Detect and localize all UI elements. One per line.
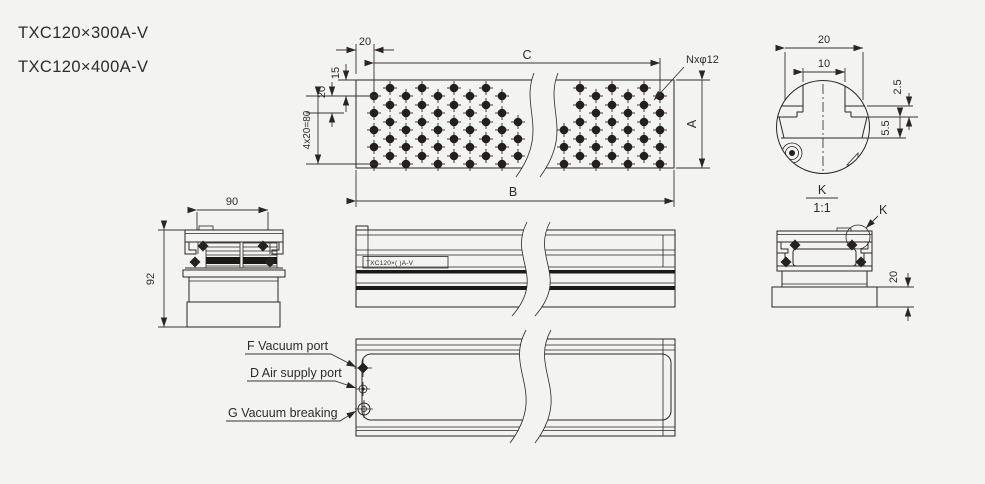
rv-hook-right (861, 242, 872, 253)
suction-hole (479, 149, 493, 163)
suction-hole (653, 140, 667, 154)
suction-hole (653, 123, 667, 137)
dk-dim25-label: 2.5 (892, 79, 904, 94)
suction-hole (431, 106, 445, 120)
suction-hole (589, 123, 603, 137)
dk-dim10-label: 10 (818, 58, 830, 70)
hole-callout-label: Nxφ12 (686, 54, 719, 66)
suction-hole (637, 115, 651, 129)
rv-mid-plate (777, 266, 872, 271)
suction-hole (653, 106, 667, 120)
suction-hole (447, 132, 461, 146)
dk-dim20-label: 20 (818, 34, 830, 46)
dim-90-label: 90 (226, 196, 238, 208)
rv-dim20-ext (877, 287, 914, 307)
suction-hole (495, 106, 509, 120)
plan-view: 20 C Nxφ12 15 20 4x20=80 A B (302, 36, 719, 207)
suction-hole (573, 149, 587, 163)
dim92-ext (158, 230, 187, 327)
suction-hole (653, 157, 667, 171)
suction-hole (479, 115, 493, 129)
suction-hole (415, 81, 429, 95)
technical-drawing-sheet: TXC120×300A-V TXC120×400A-V 20 C Nxφ12 1… (0, 0, 985, 484)
suction-hole (605, 81, 619, 95)
suction-hole (383, 81, 397, 95)
suction-hole (637, 132, 651, 146)
dim90-ext (197, 212, 268, 230)
suction-hole (479, 81, 493, 95)
dk-ledge-right (845, 106, 870, 117)
suction-hole (431, 140, 445, 154)
lv-hook-right (272, 242, 283, 254)
dk-slot-walls (803, 80, 845, 112)
suction-hole (383, 98, 397, 112)
port-d-leader (247, 381, 356, 388)
dim-c-label: C (522, 48, 531, 62)
detail-name-label: K (818, 183, 827, 197)
suction-hole (367, 123, 381, 137)
dk-ledge-left (776, 106, 803, 117)
suction-hole (511, 149, 525, 163)
detail-scale-label: 1:1 (813, 201, 830, 215)
port-d-label: D Air supply port (250, 366, 342, 380)
bv-profile-lines (356, 345, 675, 431)
suction-hole (637, 81, 651, 95)
hole-callout-leader (654, 67, 684, 100)
lv-base-lower (187, 302, 280, 327)
suction-hole (511, 132, 525, 146)
suction-hole (637, 149, 651, 163)
suction-hole (399, 157, 413, 171)
dim-a-label: A (685, 119, 699, 128)
suction-hole (557, 157, 571, 171)
rv-detail-circle (846, 225, 870, 249)
suction-hole (447, 115, 461, 129)
suction-hole (495, 123, 509, 137)
suction-hole (367, 140, 381, 154)
suction-hole (605, 98, 619, 112)
right-end-view: K 20 K 1:1 (772, 183, 914, 321)
suction-hole (621, 157, 635, 171)
suction-hole (415, 149, 429, 163)
suction-hole (431, 157, 445, 171)
suction-hole (589, 89, 603, 103)
suction-hole (511, 115, 525, 129)
fv-marking-text: TXC120×( )A-V (366, 260, 414, 267)
suction-hole-grid (367, 81, 667, 171)
suction-hole (621, 140, 635, 154)
suction-hole (495, 157, 509, 171)
suction-hole (605, 132, 619, 146)
suction-hole (383, 132, 397, 146)
suction-hole (573, 132, 587, 146)
air-supply-port-marker (356, 382, 370, 396)
suction-hole (463, 140, 477, 154)
rv-detail-leader (866, 216, 878, 228)
suction-hole (621, 89, 635, 103)
suction-hole (495, 140, 509, 154)
fv-body (356, 230, 675, 307)
fv-left-tab (356, 226, 368, 230)
suction-hole (589, 140, 603, 154)
suction-hole (557, 123, 571, 137)
suction-hole (415, 132, 429, 146)
suction-hole (605, 149, 619, 163)
suction-hole (367, 106, 381, 120)
title-block: TXC120×300A-V TXC120×400A-V (18, 24, 148, 76)
dim-top-margin-label: 15 (330, 67, 342, 79)
rv-detail-ref-label: K (879, 203, 888, 217)
port-f-label: F Vacuum port (247, 339, 329, 353)
lv-fastener-3 (190, 257, 201, 268)
suction-hole (621, 106, 635, 120)
dim-edge-offset-label: 20 (359, 36, 371, 48)
rv-base-lower (772, 287, 877, 307)
suction-hole (383, 149, 397, 163)
rv-top-plate (777, 231, 872, 242)
suction-hole (495, 89, 509, 103)
suction-hole (589, 106, 603, 120)
fv-dark-band-1 (356, 270, 675, 274)
suction-hole (463, 89, 477, 103)
suction-hole (415, 115, 429, 129)
rv-base-upper (782, 271, 867, 287)
dk-dim10-ext (803, 68, 845, 82)
lv-mid-plate (183, 270, 285, 277)
lv-bellows-left (206, 243, 240, 268)
suction-hole (589, 157, 603, 171)
suction-hole (479, 98, 493, 112)
rv-cavity (793, 249, 856, 266)
port-g-label: G Vacuum breaking (228, 406, 338, 420)
suction-hole (605, 115, 619, 129)
suction-hole (479, 132, 493, 146)
suction-hole (573, 115, 587, 129)
model-number-2: TXC120×400A-V (18, 58, 148, 76)
rv-hook-left (777, 242, 788, 253)
lv-top-plate (185, 230, 283, 242)
suction-hole (447, 98, 461, 112)
suction-hole (447, 149, 461, 163)
rv-dim20-label: 20 (888, 271, 900, 283)
front-view: TXC120×( )A-V (356, 222, 675, 316)
suction-hole (399, 106, 413, 120)
suction-hole (399, 123, 413, 137)
vacuum-port-marker (354, 359, 372, 377)
dim-b-label: B (509, 185, 517, 199)
drawing-svg: TXC120×300A-V TXC120×400A-V 20 C Nxφ12 1… (0, 0, 985, 484)
suction-hole (573, 81, 587, 95)
fv-profile-lines (356, 235, 675, 283)
suction-hole (431, 123, 445, 137)
bv-inner-face (362, 354, 671, 420)
suction-hole (399, 140, 413, 154)
suction-hole (463, 106, 477, 120)
suction-hole (463, 123, 477, 137)
detail-k-view: 20 10 2.5 5.5 (776, 34, 918, 174)
left-end-view: 90 92 (145, 196, 285, 327)
suction-hole (431, 89, 445, 103)
suction-hole (573, 98, 587, 112)
suction-hole (621, 123, 635, 137)
lv-inner-walls (198, 242, 270, 254)
suction-hole (637, 98, 651, 112)
model-number-1: TXC120×300A-V (18, 24, 148, 42)
suction-hole (557, 140, 571, 154)
suction-hole (399, 89, 413, 103)
fv-dark-band-2 (356, 286, 675, 290)
dim-rows-total-label: 4x20=80 (302, 110, 313, 149)
dim-92-label: 92 (145, 273, 157, 285)
lv-hook-left (185, 242, 196, 254)
vacuum-breaking-port-marker (355, 400, 373, 418)
suction-hole (383, 115, 397, 129)
plan-break-mask (516, 73, 558, 177)
lv-top-tab (199, 226, 213, 230)
suction-hole (447, 81, 461, 95)
bottom-view: F Vacuum port D Air supply port G Vacuum… (226, 330, 675, 443)
dk-dim55-label: 5.5 (880, 120, 892, 135)
suction-hole (415, 98, 429, 112)
suction-hole (463, 157, 477, 171)
